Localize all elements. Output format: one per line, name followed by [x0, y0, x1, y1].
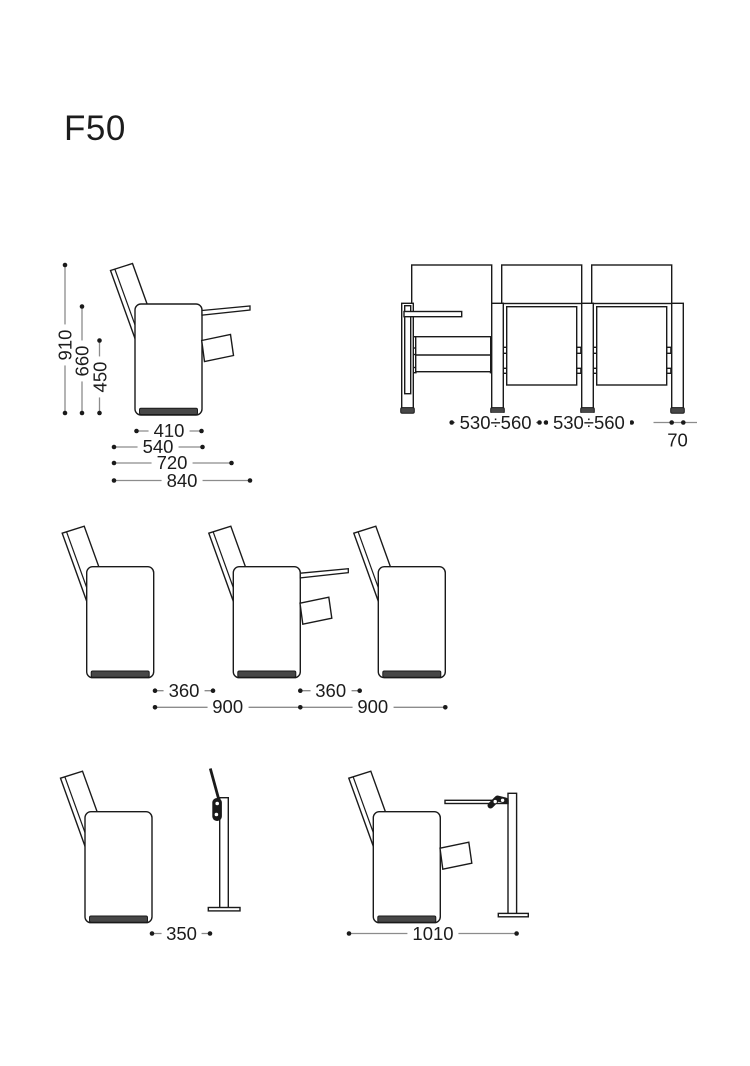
dim-endpoint-dot [97, 338, 102, 343]
dim-label-stand-folded-distance: 350 [161, 923, 202, 942]
dim-label-depth-tablet-open: 840 [162, 470, 203, 489]
dim-endpoint-dot [629, 420, 634, 425]
dim-endpoint-dot [449, 420, 454, 425]
chair-side-profile [354, 526, 446, 678]
front-seat-down [597, 307, 667, 385]
dim-label-seat-axis-width-1: 530÷560 [455, 412, 537, 431]
seat-leg [582, 303, 594, 408]
technical-drawing-canvas [0, 0, 750, 1066]
dim-label-leg-width: 70 [662, 430, 693, 449]
dim-endpoint-dot [681, 420, 686, 425]
dim-endpoint-dot [199, 429, 204, 434]
writing-tablet-open [404, 312, 462, 317]
tablet-stand-folded-figure [61, 769, 241, 936]
writing-tablet-folded [300, 597, 332, 624]
row-spacing-figure [62, 526, 447, 709]
dim-endpoint-dot [514, 931, 519, 936]
dim-endpoint-dot [80, 411, 85, 416]
dim-label-row-clearance-1: 360 [164, 681, 205, 700]
dim-endpoint-dot [112, 461, 117, 466]
technical-drawing-page: F50 910 660 450 410 540 720 840 530÷560 … [0, 0, 750, 1066]
hinge-pin [494, 800, 497, 803]
leg-foot [401, 408, 415, 414]
front-backrest [592, 265, 672, 304]
tablet-stand-folded [208, 769, 240, 911]
front-backrest [412, 265, 492, 337]
dim-endpoint-dot [537, 420, 542, 425]
front-seat-folded [416, 337, 491, 372]
dim-endpoint-dot [63, 263, 68, 268]
armrest-blade [300, 569, 348, 578]
dim-endpoint-dot [669, 420, 674, 425]
dim-endpoint-dot [229, 461, 234, 466]
chair-side-profile [349, 771, 441, 923]
chair-side-profile [209, 526, 300, 678]
writing-tablet-folded [440, 842, 472, 869]
leg-foot [671, 408, 685, 414]
dim-endpoint-dot [298, 705, 303, 710]
chair-side-profile [61, 771, 153, 923]
writing-tablet-folded [202, 335, 234, 362]
tablet-stand-base [498, 913, 528, 916]
front-seat-down [507, 307, 577, 385]
dim-endpoint-dot [134, 429, 139, 434]
seat-leg [492, 303, 504, 408]
chair-side-profile [111, 264, 203, 416]
dim-endpoint-dot [63, 411, 68, 416]
dim-endpoint-dot [443, 705, 448, 710]
front-backrest [502, 265, 582, 304]
tablet-arm-frame [405, 306, 411, 394]
dim-label-seat-axis-width-2: 530÷560 [548, 412, 630, 431]
dim-label-stand-open-distance: 1010 [407, 923, 458, 942]
hinge-pin [215, 802, 219, 806]
dim-endpoint-dot [150, 931, 155, 936]
front-view-figure [401, 265, 697, 425]
dim-endpoint-dot [298, 688, 303, 693]
chair-side-profile [62, 526, 154, 678]
tablet-hinge-mechanism [212, 798, 222, 821]
dim-endpoint-dot [200, 445, 205, 450]
page-title: F50 [64, 109, 126, 149]
tablet-stand-base [208, 908, 240, 911]
armrest-blade [202, 306, 250, 315]
dim-endpoint-dot [211, 688, 216, 693]
dim-label-seat-height: 450 [90, 357, 109, 398]
dim-endpoint-dot [153, 688, 158, 693]
dim-label-row-clearance-2: 360 [310, 681, 351, 700]
seat-leg [672, 303, 684, 408]
dim-endpoint-dot [248, 478, 253, 483]
dim-endpoint-dot [112, 445, 117, 450]
tablet-stand-post [508, 793, 517, 915]
hinge-pin [215, 813, 219, 817]
dim-endpoint-dot [80, 304, 85, 309]
dim-label-row-spacing-2: 900 [352, 697, 393, 716]
tablet-stand-open-figure [347, 771, 529, 936]
dim-endpoint-dot [347, 931, 352, 936]
dim-endpoint-dot [112, 478, 117, 483]
dim-endpoint-dot [208, 931, 213, 936]
stand-tablet-folded-blade [210, 769, 219, 800]
dim-endpoint-dot [97, 411, 102, 416]
hinge-pin [501, 799, 504, 802]
dim-endpoint-dot [153, 705, 158, 710]
dim-label-row-spacing-1: 900 [207, 697, 248, 716]
dim-endpoint-dot [357, 688, 362, 693]
